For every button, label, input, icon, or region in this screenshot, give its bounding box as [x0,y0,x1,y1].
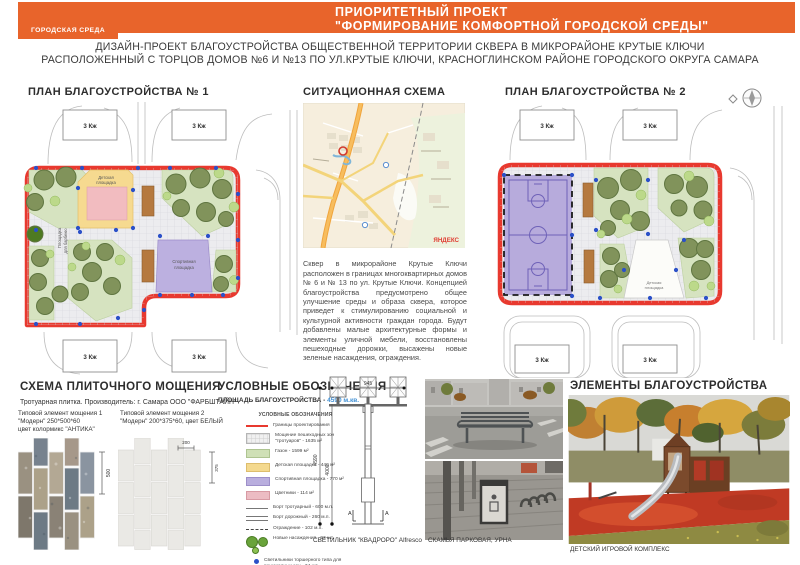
building-label: 3 Кж [535,357,549,364]
plan1-sport-label: площадка [174,265,194,270]
tile-pattern-1: 500 [18,438,114,550]
plan2-drawing: 3 Кж 3 Кж 3 Кж 3 Кж [490,100,790,378]
playground-photo [568,395,790,544]
situation-map: ЯНДЕКС [303,103,465,248]
playground-swatch-icon [246,463,270,472]
plan2-title: ПЛАН БЛАГОУСТРОЙСТВА № 2 [505,86,686,98]
plan1-title: ПЛАН БЛАГОУСТРОЙСТВА № 1 [28,86,209,98]
building-label: 3 Кж [192,354,206,361]
section-mark-a: А [385,511,389,517]
lamp-caption: СВЕТИЛЬНИК "КВАДРОРО" Alfresco [313,537,422,544]
header-title-line1: ПРИОРИТЕТНЫЙ ПРОЕКТ [335,5,508,19]
boundary-line-icon [246,425,268,427]
project-description: Сквер в микрорайоне Крутые Ключи располо… [303,259,467,362]
building-label: 3 Кж [83,123,97,130]
map-watermark: ЯНДЕКС [433,237,459,244]
plan1-playground-pad [87,187,127,220]
lawn-swatch-icon [246,449,270,458]
header-title-line2: "ФОРМИРОВАНИЕ КОМФОРТНОЙ ГОРОДСКОЙ СРЕДЫ… [335,19,709,33]
lamp-dim-pole: 4000 [325,464,331,475]
lamp-diagram: 945 4590 4000 А А [312,374,424,534]
tile2-caption: Типовой элемент мощения 2 "Модерн" 200*3… [120,410,230,426]
paving-subtitle: Тротуарная плитка. Производитель: г. Сам… [20,399,236,406]
tile2-dim-width-label: 200 [182,440,190,445]
section-mark-a: А [348,511,352,517]
logo: ГОРОДСКАЯ СРЕДА [18,2,118,39]
lamp-dimension-lines [320,388,404,524]
paving-title: СХЕМА ПЛИТОЧНОГО МОЩЕНИЯ [20,381,221,393]
building-label: 3 Кж [643,357,657,364]
fence-line-icon [246,529,268,530]
project-subtitle-line1: ДИЗАЙН-ПРОЕКТ БЛАГОУСТРОЙСТВА ОБЩЕСТВЕНН… [0,41,800,53]
bench-photo [425,379,563,459]
lamp-dim-width: 945 [364,381,373,387]
building-label: 3 Кж [192,123,206,130]
situation-title: СИТУАЦИОННАЯ СХЕМА [303,86,445,98]
project-subtitle-line2: РАСПОЛОЖЕННЫЙ С ТОРЦОВ ДОМОВ №6 И №13 ПО… [0,54,800,66]
tile1-caption: Типовой элемент мощения 1 "Модерн" 250*5… [18,410,118,435]
elements-title: ЭЛЕМЕНТЫ БЛАГОУСТРОЙСТВА [570,380,768,392]
urn-photo [425,461,563,540]
building-label: 3 Кж [540,123,554,130]
plan1-playground-label: площадка [96,180,116,185]
paving-swatch-icon [246,433,270,444]
sport-swatch-icon [246,477,270,486]
tree-icon [246,536,268,553]
plan2-playground-label: площадка [645,285,664,290]
plan1-bbq-label: для барбекю [63,229,68,254]
building-label: 3 Кж [83,354,97,361]
lamp-dim-total: 4590 [313,454,319,465]
bench-caption: СКАМЬЯ ПАРКОВАЯ, УРНА [428,537,512,544]
plan1-drawing: 3 Кж 3 Кж 3 Кж 3 Кж [20,100,300,378]
building-label: 3 Кж [643,123,657,130]
plan1-sport-label: Спортивная [172,259,195,264]
curb-line-icon [246,508,268,509]
logo-text: ГОРОДСКАЯ СРЕДА [18,27,118,35]
road-curb-line-icon [246,516,268,521]
tile2-dim-height-label: 375 [214,464,219,472]
urn-shape [481,481,507,523]
lamp-dot-icon [254,559,259,564]
legend-row: Светильники торшерного типа для пешеходн… [246,558,345,565]
tile1-dimension [99,452,105,494]
playground-caption: ДЕТСКИЙ ИГРОВОЙ КОМПЛЕКС [570,546,670,553]
tile1-dim-label: 500 [106,469,112,478]
flowerbed-swatch-icon [246,491,270,500]
plan1-bbq-label: Площадка [57,227,62,248]
tile-pattern-2: 200 375 [118,438,220,550]
poster: ГОРОДСКАЯ СРЕДА ПРИОРИТЕТНЫЙ ПРОЕКТ "ФОР… [0,0,800,565]
